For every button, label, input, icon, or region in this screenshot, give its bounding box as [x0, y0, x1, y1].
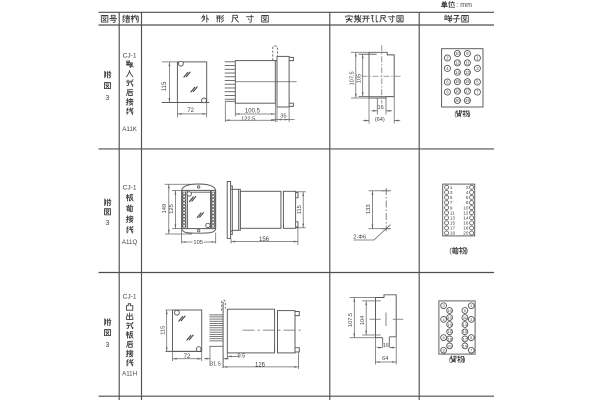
svg-text:mm: mm — [460, 2, 472, 9]
svg-text:17: 17 — [465, 89, 470, 94]
svg-text:): ) — [468, 111, 470, 118]
svg-text:CJ-1: CJ-1 — [123, 184, 137, 191]
svg-text:64: 64 — [382, 356, 388, 362]
svg-text::: : — [456, 2, 458, 9]
svg-text:19: 19 — [465, 98, 470, 103]
svg-text:14: 14 — [455, 70, 460, 75]
svg-text:125: 125 — [169, 204, 175, 214]
svg-text:122.5: 122.5 — [241, 116, 255, 122]
svg-text:19: 19 — [463, 343, 468, 348]
svg-text:20: 20 — [455, 98, 460, 103]
svg-text:11: 11 — [465, 60, 470, 65]
svg-text:10: 10 — [447, 308, 452, 313]
svg-text:15: 15 — [463, 329, 468, 334]
svg-text:A11K: A11K — [122, 126, 138, 133]
svg-text:115: 115 — [162, 81, 168, 91]
svg-text:14: 14 — [447, 322, 452, 327]
svg-text:16: 16 — [377, 105, 383, 111]
svg-text:CJ-1: CJ-1 — [123, 293, 137, 300]
svg-text:20: 20 — [463, 231, 469, 236]
svg-text:13: 13 — [463, 322, 468, 327]
svg-text:17: 17 — [463, 336, 468, 341]
svg-text:104: 104 — [360, 316, 366, 325]
svg-text:15: 15 — [465, 79, 470, 84]
svg-text:35: 35 — [280, 114, 286, 120]
svg-text:107.5: 107.5 — [349, 71, 355, 85]
svg-text:105: 105 — [357, 74, 363, 83]
svg-text:3: 3 — [106, 220, 110, 227]
svg-text:133: 133 — [366, 204, 372, 214]
svg-text:): ) — [466, 248, 468, 255]
svg-text:16: 16 — [455, 79, 460, 84]
svg-text:): ) — [463, 357, 465, 364]
svg-text:13: 13 — [465, 70, 470, 75]
svg-text:156: 156 — [259, 237, 270, 243]
svg-text:3: 3 — [106, 95, 110, 102]
svg-text:3: 3 — [106, 342, 110, 349]
svg-text:9.5: 9.5 — [237, 354, 245, 360]
svg-text:(64): (64) — [375, 117, 385, 123]
svg-text:72: 72 — [187, 108, 194, 114]
svg-text:A11H: A11H — [122, 370, 137, 377]
svg-text:72: 72 — [184, 354, 191, 360]
svg-text:A11Q: A11Q — [122, 239, 138, 246]
svg-text:18: 18 — [447, 336, 452, 341]
svg-text:10: 10 — [455, 51, 460, 56]
svg-text:2-Φ6: 2-Φ6 — [353, 234, 366, 240]
svg-text:105: 105 — [193, 240, 203, 246]
svg-text:149: 149 — [162, 204, 168, 214]
svg-text:12: 12 — [447, 315, 452, 320]
svg-text:19: 19 — [450, 231, 456, 236]
svg-text:31.5: 31.5 — [210, 361, 221, 367]
svg-text:115: 115 — [297, 205, 303, 214]
svg-text:CJ-1: CJ-1 — [123, 52, 137, 59]
svg-text:18: 18 — [455, 89, 460, 94]
svg-text:12: 12 — [455, 60, 460, 65]
svg-text:20: 20 — [447, 343, 452, 348]
svg-text:100.5: 100.5 — [245, 108, 261, 114]
svg-text:115: 115 — [160, 326, 166, 335]
svg-text:126: 126 — [255, 362, 266, 368]
svg-text:107.5: 107.5 — [348, 313, 354, 327]
svg-text:16: 16 — [383, 343, 389, 349]
svg-text:16: 16 — [447, 329, 452, 334]
